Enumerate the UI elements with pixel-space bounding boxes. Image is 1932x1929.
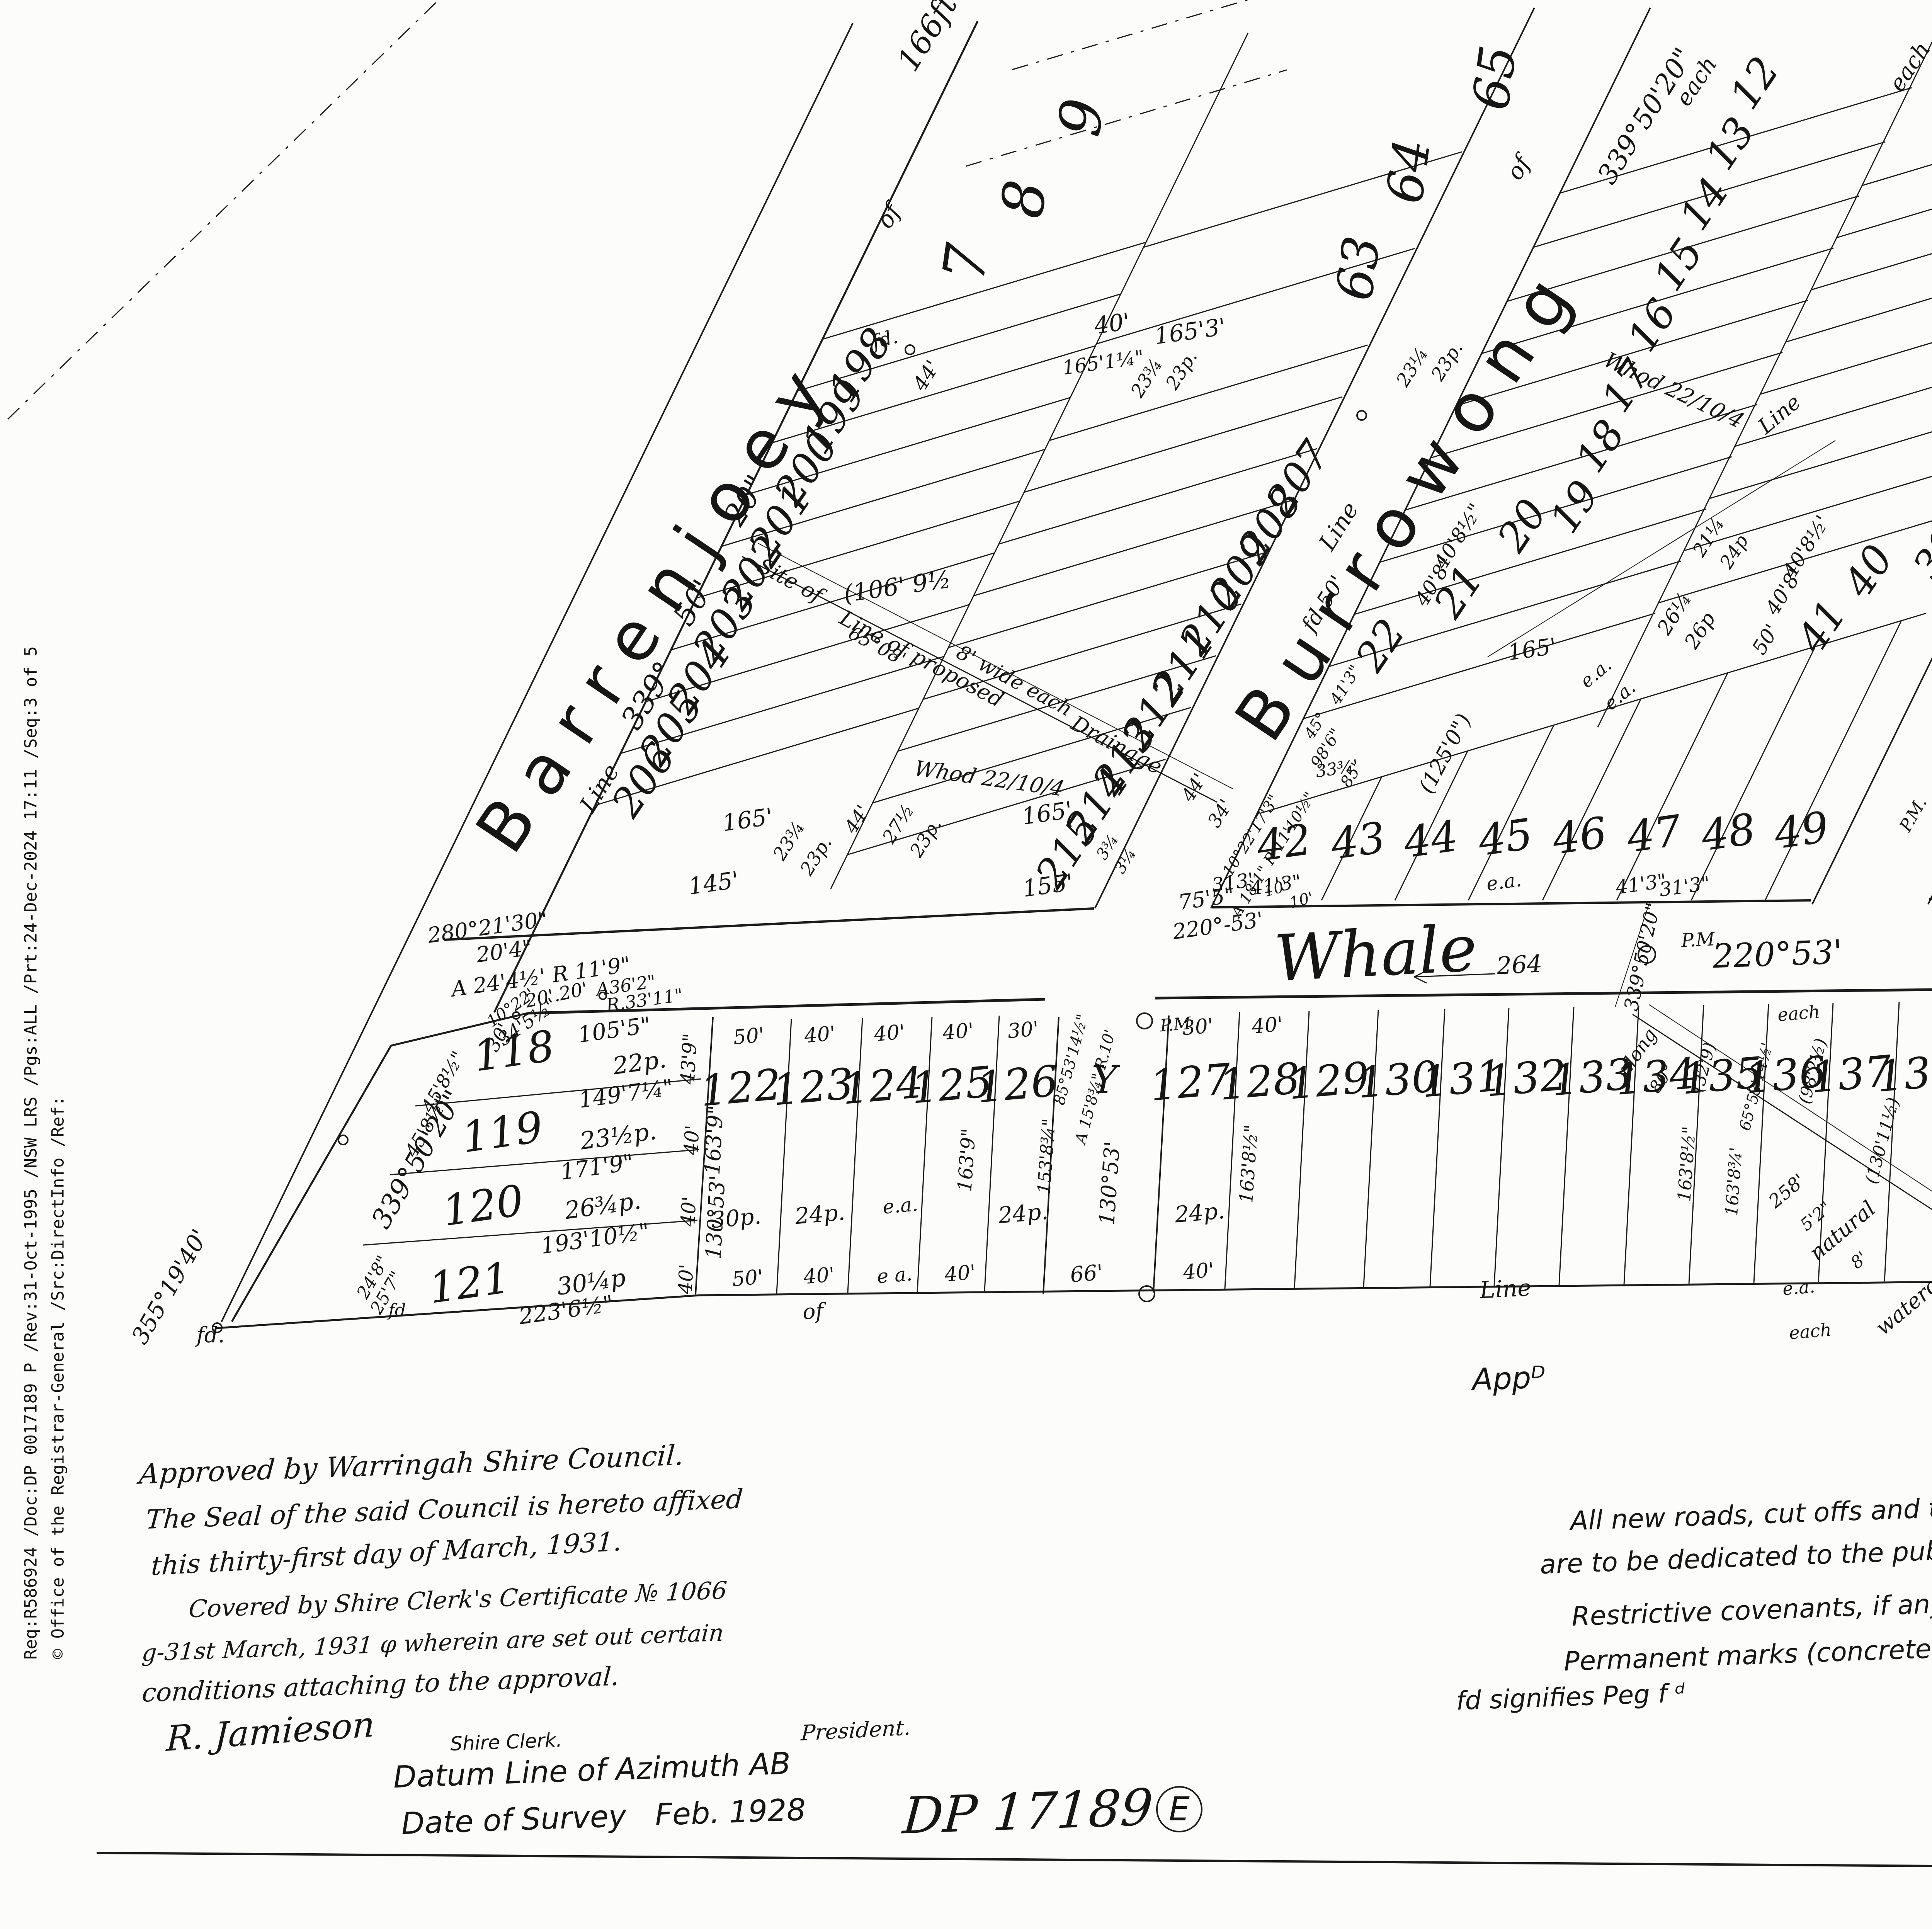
- plan-line: [1811, 184, 1932, 290]
- plan-label: 22p.: [611, 1047, 668, 1078]
- plan-label: 40': [1251, 1014, 1284, 1037]
- plan-label: 64: [1379, 136, 1438, 206]
- plan-label: 50': [731, 1267, 764, 1290]
- plan-label: 40': [675, 1264, 696, 1295]
- plan-line: [1928, 10, 1932, 904]
- plan-line: [831, 33, 1248, 889]
- plan-line: [527, 999, 1045, 1013]
- plan-line: [1786, 236, 1932, 342]
- plan-canvas: BarrenjoeyBurrowongAlbertWhale(66' wide)…: [0, 0, 1932, 1929]
- survey-mark-circle: [905, 345, 915, 354]
- plan-label: 165': [1020, 798, 1074, 828]
- plan-label: 40': [1182, 1260, 1215, 1283]
- plan-label: 63: [1329, 233, 1388, 303]
- plan-label: 30p.: [710, 1204, 762, 1231]
- scanned-survey-plan-sheet: { "sidebar": { "line1": "Req:R586924 /Do…: [0, 0, 1932, 1929]
- plan-label: 65: [1465, 43, 1524, 113]
- plan-line: [1153, 1016, 1169, 1293]
- survey-mark-circle: [1139, 1286, 1155, 1301]
- plan-label: 145': [687, 868, 740, 898]
- plan-label: P.M.: [1681, 929, 1721, 950]
- plan-label: 119: [459, 1106, 545, 1159]
- plan-label: President.: [801, 1717, 912, 1744]
- plan-label: e.a.: [882, 1194, 918, 1217]
- plan-label: 165': [1506, 634, 1558, 663]
- plan-label: E: [1169, 1793, 1190, 1826]
- plan-label: 313': [1210, 870, 1255, 895]
- plan-line: [1294, 1011, 1309, 1288]
- plan-label: 155': [1021, 871, 1075, 901]
- plan-line: [1012, 0, 1333, 70]
- plan-label: 122: [699, 1063, 783, 1112]
- plan-label: 42: [1254, 818, 1314, 868]
- plan-label: P.M: [1159, 1015, 1191, 1035]
- plan-label: each: [1788, 1320, 1832, 1342]
- plan-label: e.a.: [1485, 870, 1522, 894]
- plan-label: 40': [873, 1022, 906, 1045]
- plan-label: Whale: [1273, 917, 1479, 991]
- plan-line: [1837, 132, 1932, 238]
- plan-label: DP 17189: [901, 1782, 1154, 1841]
- plan-label: e.a.: [1782, 1277, 1816, 1298]
- plan-line: [97, 1853, 1932, 1871]
- plan-label: fd.: [196, 1325, 224, 1346]
- plan-label: 24p.: [794, 1201, 846, 1227]
- plan-label: 40': [942, 1021, 975, 1043]
- plan-label: of: [802, 1300, 824, 1323]
- plan-label: each: [1777, 1002, 1821, 1024]
- plan-label: 153'8¾": [1035, 1118, 1058, 1194]
- plan-line: [1617, 673, 1728, 900]
- plan-label: 48: [1699, 808, 1758, 857]
- plan-label: 163'9": [955, 1128, 978, 1192]
- plan-label: 50': [733, 1025, 765, 1048]
- plan-label: fd signifies Peg f ᵈ: [1456, 1681, 1686, 1714]
- plan-line: [1543, 699, 1641, 900]
- plan-line: [1812, 10, 1932, 904]
- plan-label: 40': [678, 1196, 699, 1227]
- plan-label: 126: [975, 1060, 1060, 1109]
- plan-line: [1691, 647, 1815, 900]
- plan-label: 220°53': [1712, 936, 1843, 973]
- plan-label: 66': [1069, 1262, 1104, 1286]
- plan-label: 163'8½": [1675, 1126, 1698, 1202]
- plan-line: [1559, 1007, 1574, 1285]
- plan-label: 40': [804, 1024, 837, 1046]
- plan-label: 45: [1476, 813, 1535, 862]
- plan-label: 30': [1007, 1019, 1040, 1042]
- plan-label: 24p.: [997, 1200, 1049, 1226]
- plan-label: 24p.: [1174, 1199, 1226, 1226]
- survey-mark-circle: [1137, 1013, 1152, 1029]
- plan-label: fd.: [388, 1301, 412, 1319]
- plan-line: [1494, 1008, 1509, 1286]
- plan-label: 121: [426, 1256, 512, 1310]
- plan-label: Shire Clerk.: [450, 1730, 562, 1754]
- plan-line: [966, 70, 1287, 166]
- plan-label: Appᴰ: [1472, 1363, 1546, 1395]
- plan-label: 46: [1550, 811, 1609, 861]
- plan-line: [1430, 1009, 1445, 1287]
- plan-label: 43: [1328, 816, 1388, 866]
- plan-label: 130°53': [1096, 1141, 1123, 1226]
- plan-label: 165': [721, 805, 774, 835]
- plan-label: 44: [1401, 815, 1461, 864]
- plan-line: [1862, 80, 1932, 185]
- plan-line: [1225, 1012, 1240, 1289]
- plan-label: 163'8½": [1237, 1124, 1261, 1204]
- plan-line: [1155, 984, 1932, 998]
- plan-label: 47: [1624, 809, 1684, 859]
- plan-label: 120: [440, 1179, 526, 1232]
- plan-line: [1765, 621, 1901, 900]
- survey-mark-circle: [338, 1135, 348, 1145]
- plan-label: 40': [1093, 310, 1131, 338]
- survey-mark-circle: [1357, 411, 1366, 420]
- plan-label: e a.: [876, 1264, 913, 1286]
- plan-label: 40': [681, 1124, 702, 1155]
- plan-label: 40': [803, 1265, 836, 1288]
- plan-line: [1364, 1010, 1378, 1287]
- plan-label: 49: [1772, 806, 1831, 855]
- plan-label: 43'9": [678, 1033, 700, 1085]
- plan-label: 40': [944, 1262, 977, 1285]
- plan-label: 138: [1875, 1049, 1932, 1098]
- plan-label: Line: [1479, 1276, 1532, 1302]
- plan-label: 264: [1496, 952, 1543, 978]
- plan-label: 163'8¾': [1723, 1147, 1745, 1216]
- plan-line: [8, 0, 439, 419]
